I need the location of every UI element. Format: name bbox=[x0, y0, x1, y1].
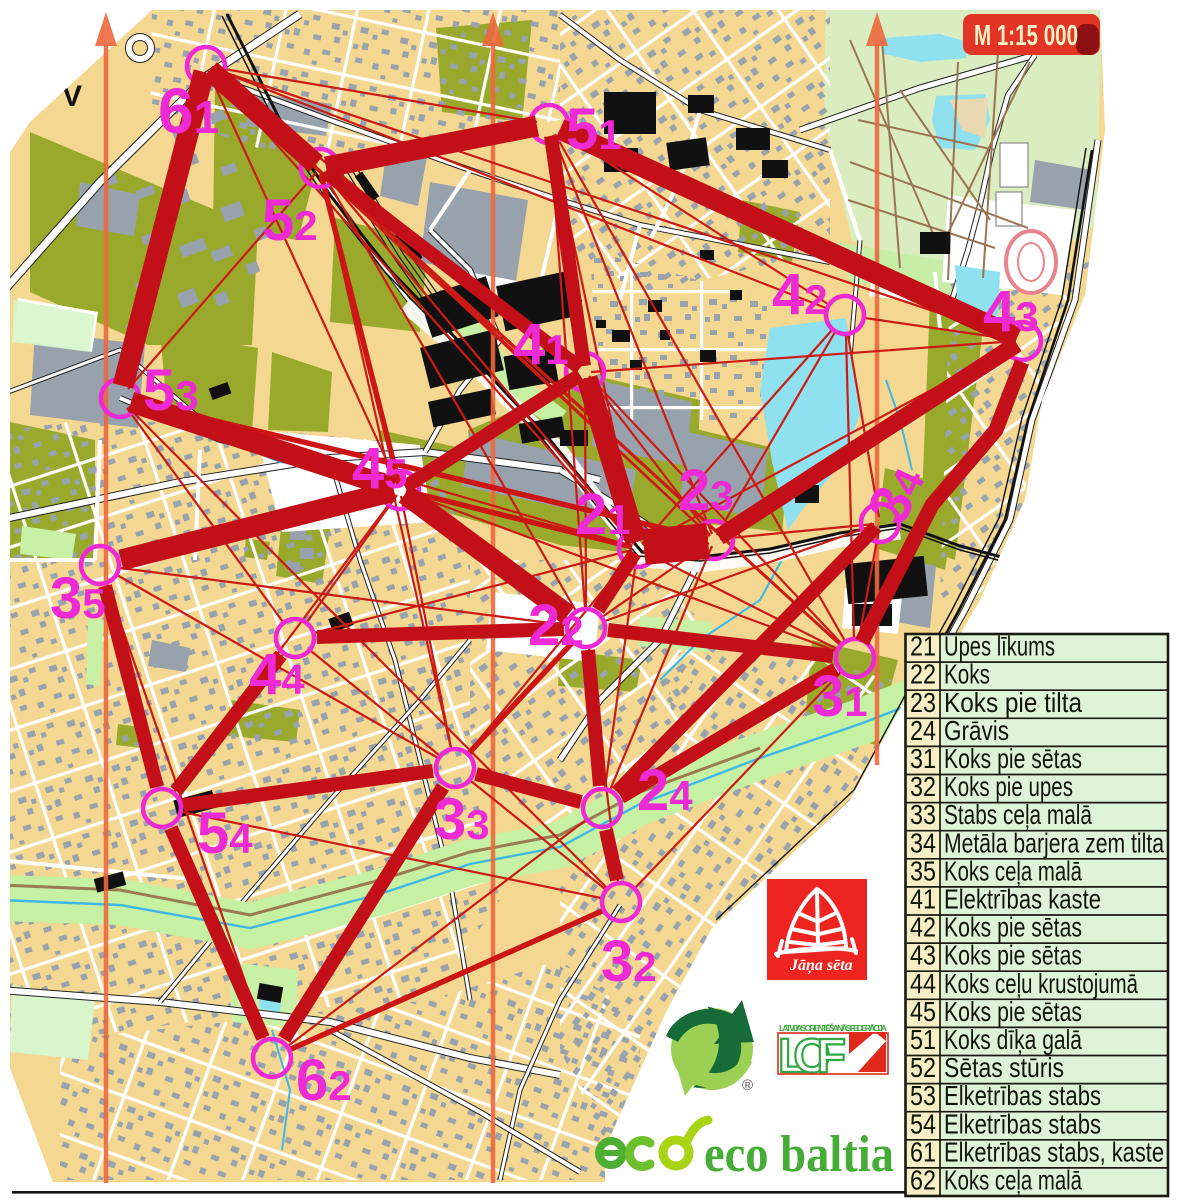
svg-text:Koks pie sētas: Koks pie sētas bbox=[944, 912, 1082, 943]
svg-text:41: 41 bbox=[910, 884, 936, 915]
svg-text:Grāvis: Grāvis bbox=[944, 715, 1009, 746]
svg-text:42: 42 bbox=[910, 912, 936, 943]
svg-text:43: 43 bbox=[910, 940, 936, 971]
svg-text:24: 24 bbox=[910, 715, 936, 746]
svg-text:Koks pie sētas: Koks pie sētas bbox=[944, 940, 1082, 971]
svg-text:eco baltia: eco baltia bbox=[704, 1126, 894, 1183]
svg-text:62: 62 bbox=[910, 1165, 936, 1196]
svg-text:31: 31 bbox=[910, 743, 936, 774]
svg-text:54: 54 bbox=[910, 1108, 936, 1139]
svg-text:61: 61 bbox=[910, 1136, 936, 1167]
svg-text:52: 52 bbox=[910, 1052, 936, 1083]
svg-text:Koks pie sētas: Koks pie sētas bbox=[944, 743, 1082, 774]
svg-text:Koks pie sētas: Koks pie sētas bbox=[944, 996, 1082, 1027]
svg-text:Koks dīķa galā: Koks dīķa galā bbox=[944, 1024, 1082, 1055]
svg-text:Stabs ceļa malā: Stabs ceļa malā bbox=[944, 799, 1092, 830]
svg-text:Koks ceļu krustojumā: Koks ceļu krustojumā bbox=[944, 968, 1138, 999]
svg-text:Koks pie upes: Koks pie upes bbox=[944, 771, 1073, 802]
svg-text:Metāla barjera zem tilta: Metāla barjera zem tilta bbox=[944, 827, 1164, 858]
svg-text:34: 34 bbox=[910, 827, 936, 858]
svg-text:Elketrības stabs, kaste: Elketrības stabs, kaste bbox=[944, 1136, 1164, 1167]
svg-text:LOF: LOF bbox=[778, 1030, 846, 1083]
svg-text:Elketrības stabs: Elketrības stabs bbox=[944, 1080, 1101, 1111]
svg-text:44: 44 bbox=[910, 968, 936, 999]
svg-text:35: 35 bbox=[910, 855, 936, 886]
svg-text:23: 23 bbox=[910, 687, 936, 718]
svg-text:Elketrības stabs: Elketrības stabs bbox=[944, 1108, 1101, 1139]
svg-text:Sētas stūris: Sētas stūris bbox=[944, 1052, 1064, 1083]
svg-text:45: 45 bbox=[910, 996, 936, 1027]
svg-text:Koks pie tilta: Koks pie tilta bbox=[944, 687, 1082, 718]
svg-text:M 1:15 000: M 1:15 000 bbox=[974, 20, 1078, 52]
svg-text:®: ® bbox=[742, 1077, 753, 1094]
svg-text:33: 33 bbox=[910, 799, 936, 830]
svg-text:53: 53 bbox=[910, 1080, 936, 1111]
svg-text:51: 51 bbox=[910, 1024, 936, 1055]
svg-text:Jāņa sēta: Jāņa sēta bbox=[789, 957, 853, 975]
svg-text:Koks ceļa malā: Koks ceļa malā bbox=[944, 855, 1082, 886]
svg-text:Elektrības kaste: Elektrības kaste bbox=[944, 884, 1101, 915]
svg-text:22: 22 bbox=[910, 659, 936, 690]
svg-text:Koks ceļa malā: Koks ceļa malā bbox=[944, 1165, 1082, 1196]
svg-text:32: 32 bbox=[910, 771, 936, 802]
svg-text:Koks: Koks bbox=[944, 659, 990, 690]
